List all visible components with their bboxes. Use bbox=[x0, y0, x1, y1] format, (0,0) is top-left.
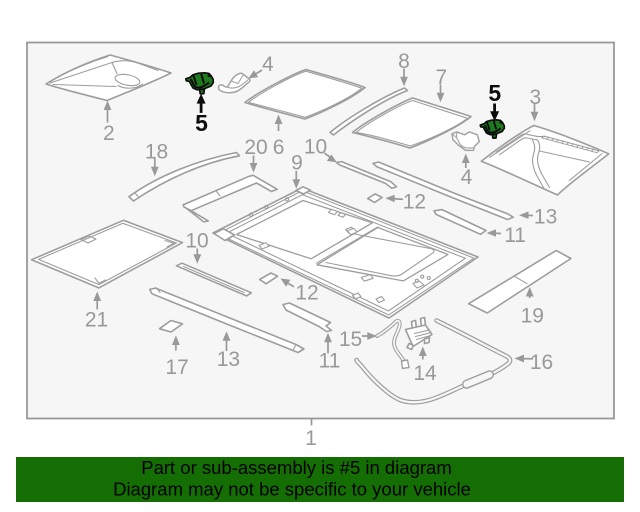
svg-text:10: 10 bbox=[304, 135, 327, 158]
svg-text:18: 18 bbox=[145, 140, 168, 163]
svg-text:9: 9 bbox=[291, 151, 303, 174]
svg-text:15: 15 bbox=[339, 328, 362, 351]
svg-text:16: 16 bbox=[530, 351, 553, 374]
svg-text:21: 21 bbox=[85, 309, 108, 332]
svg-text:19: 19 bbox=[521, 304, 544, 327]
svg-text:11: 11 bbox=[504, 224, 526, 247]
svg-text:4: 4 bbox=[262, 53, 274, 76]
svg-text:5: 5 bbox=[488, 80, 501, 106]
svg-text:4: 4 bbox=[461, 166, 473, 189]
svg-text:8: 8 bbox=[398, 50, 410, 73]
svg-text:7: 7 bbox=[435, 66, 447, 89]
svg-text:11: 11 bbox=[319, 350, 341, 373]
svg-text:14: 14 bbox=[413, 362, 437, 385]
svg-text:2: 2 bbox=[103, 122, 115, 145]
svg-text:Part or sub-assembly is #5 in: Part or sub-assembly is #5 in diagram bbox=[141, 457, 452, 478]
svg-text:1: 1 bbox=[305, 427, 317, 450]
svg-text:12: 12 bbox=[403, 190, 426, 213]
svg-text:12: 12 bbox=[295, 282, 318, 305]
svg-text:17: 17 bbox=[165, 356, 188, 379]
svg-text:6: 6 bbox=[273, 136, 285, 159]
svg-text:10: 10 bbox=[185, 230, 208, 253]
svg-text:3: 3 bbox=[530, 86, 542, 109]
svg-text:Diagram may not be specific to: Diagram may not be specific to your vehi… bbox=[113, 479, 471, 500]
svg-text:13: 13 bbox=[534, 206, 557, 229]
svg-text:13: 13 bbox=[217, 348, 240, 371]
svg-text:5: 5 bbox=[195, 110, 208, 136]
svg-text:20: 20 bbox=[244, 136, 267, 159]
